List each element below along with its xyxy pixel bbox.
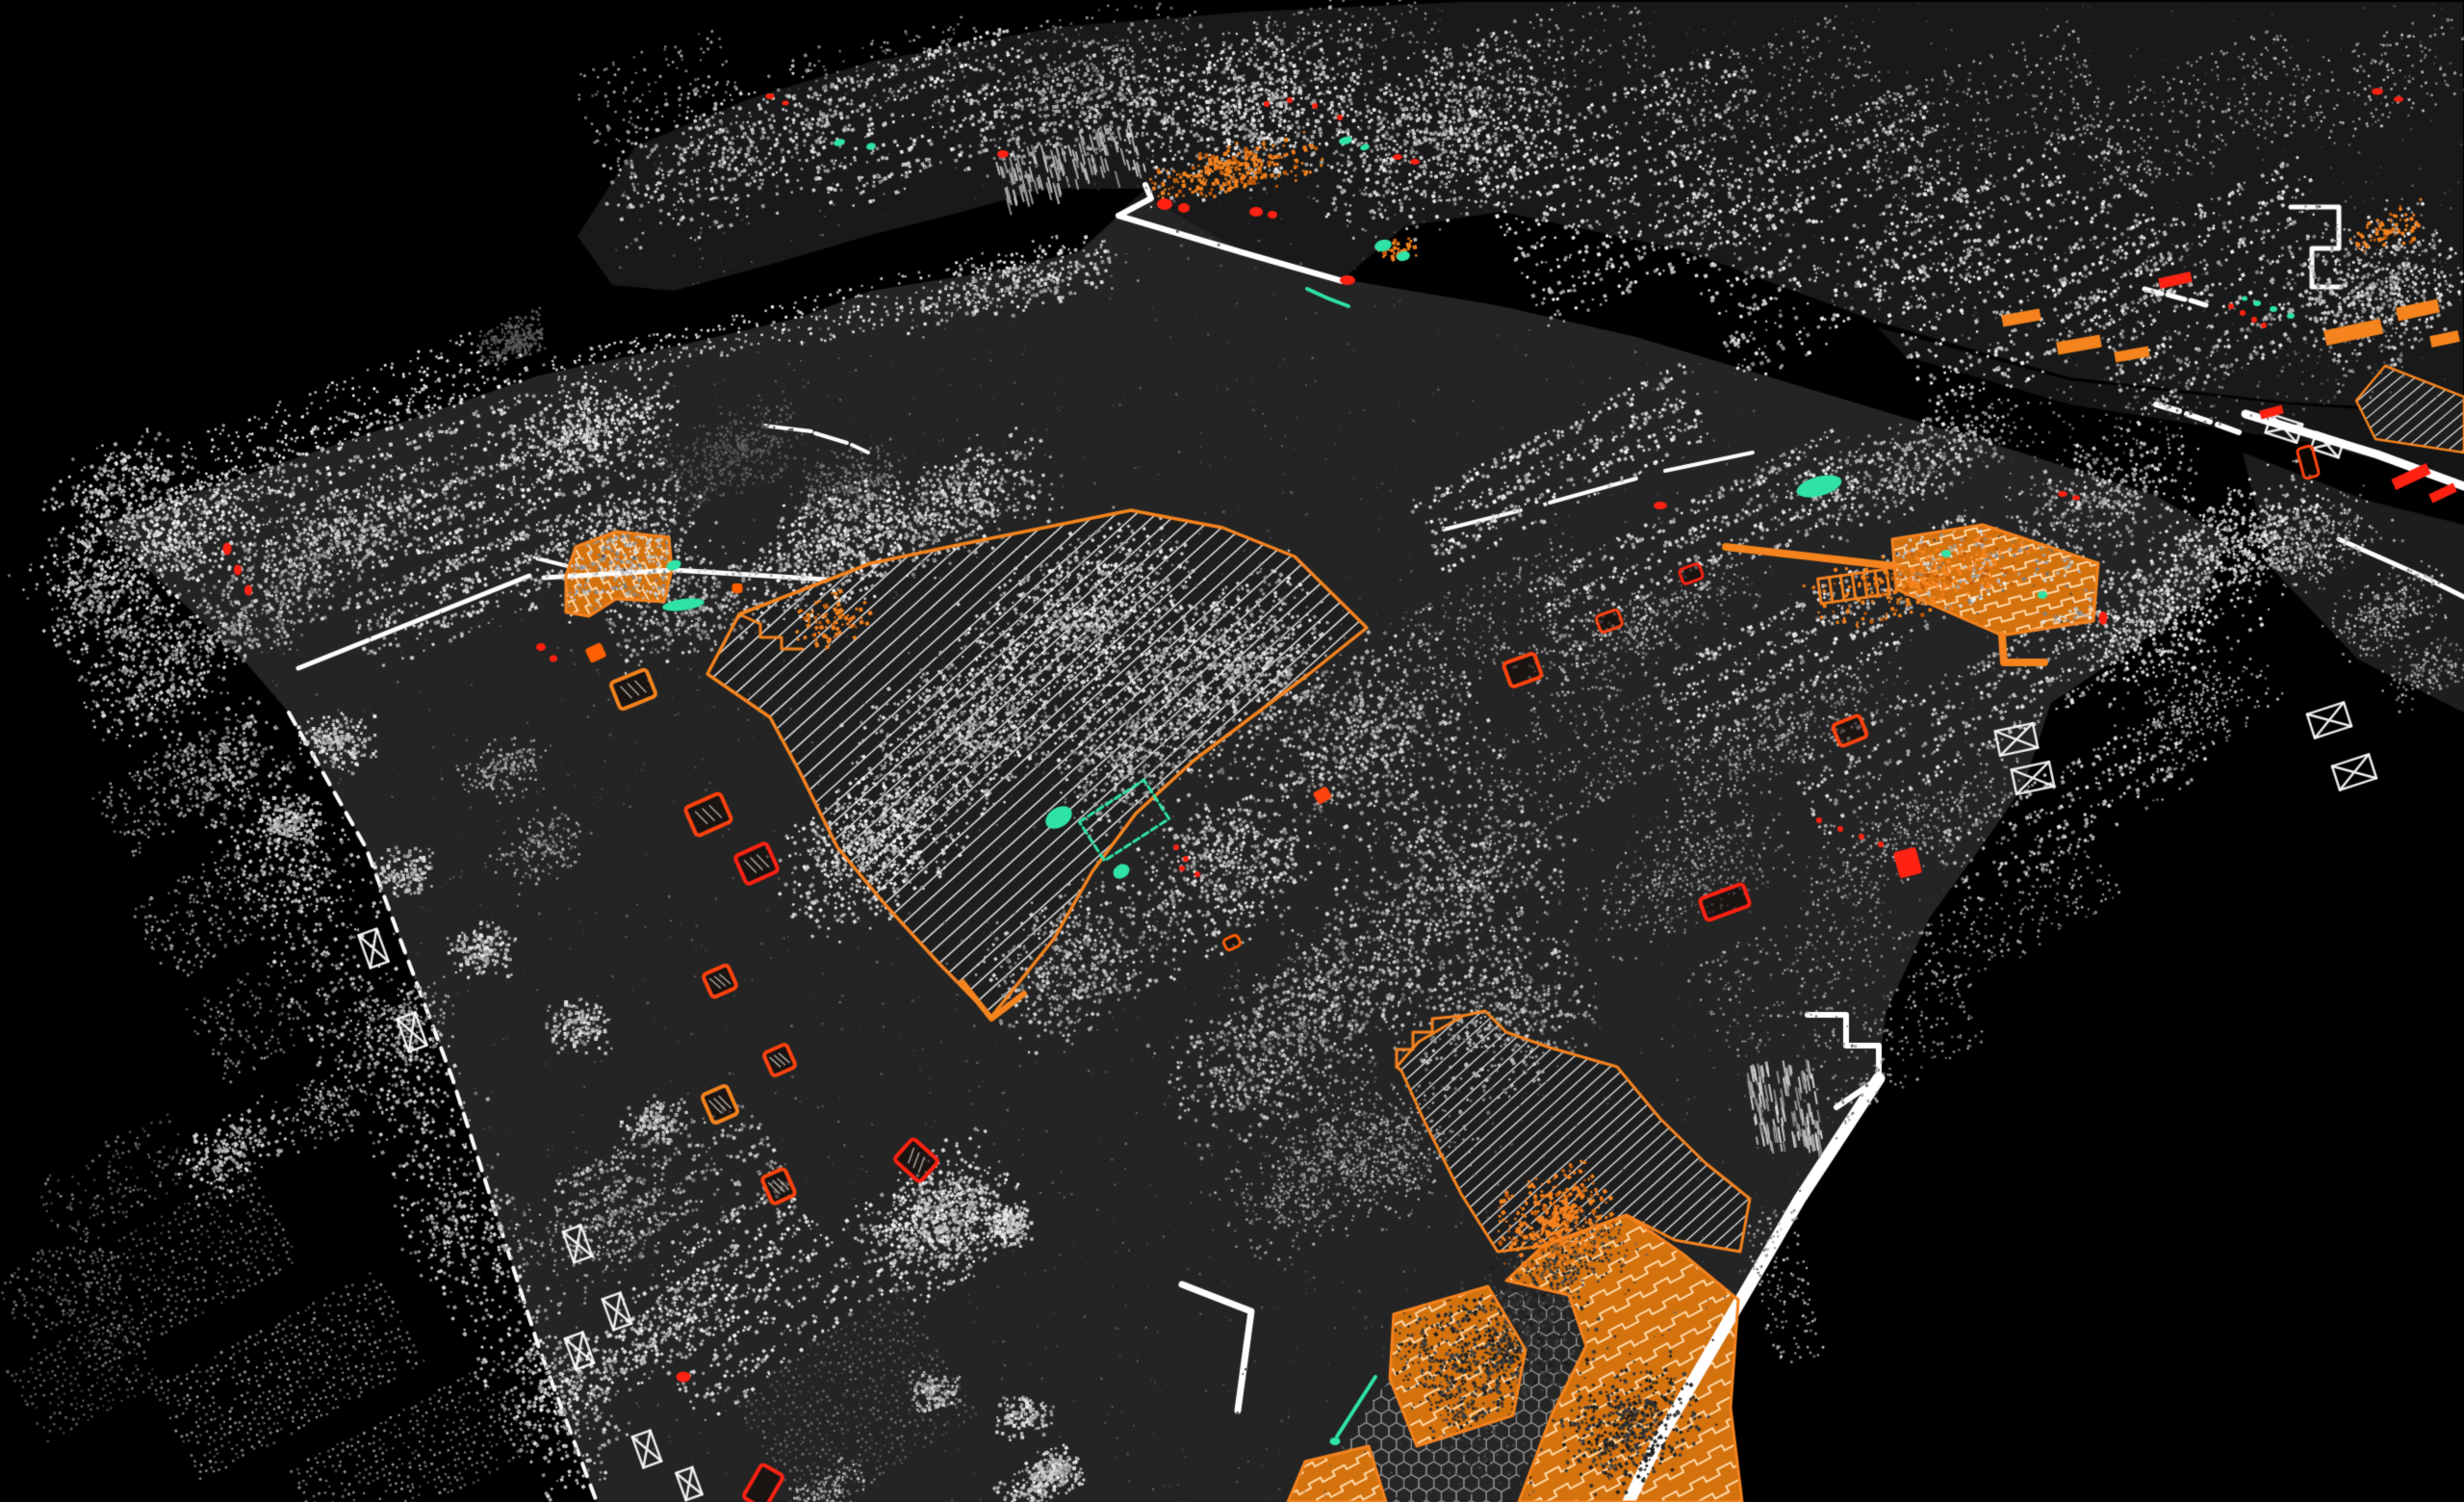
viewer-root bbox=[0, 0, 2464, 1502]
point-cloud-viewport[interactable] bbox=[0, 0, 2464, 1502]
